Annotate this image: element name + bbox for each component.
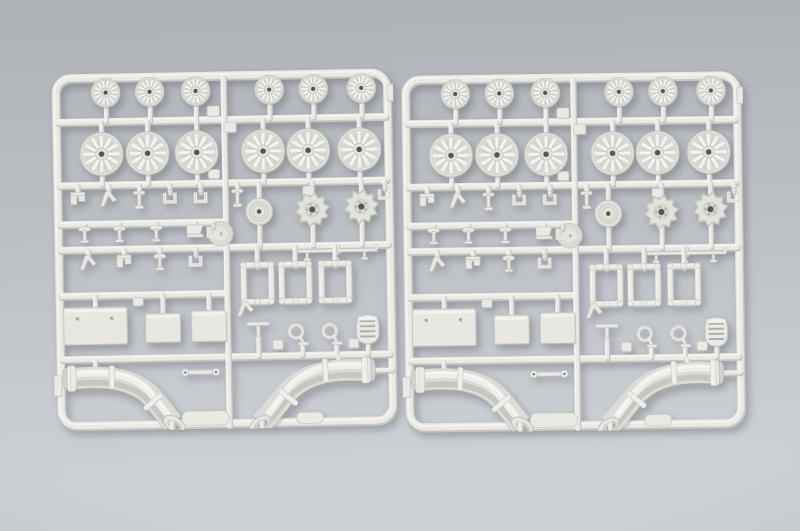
sprue-left [49,66,400,432]
small-fitting-part [80,255,97,270]
large-road-wheel-part [687,130,732,175]
idler-wheel-part [246,198,274,226]
large-road-wheel-part [126,131,171,177]
rectangular-plate-part [494,315,530,346]
tow-loop-part [289,325,308,346]
drive-sprocket-part [644,195,678,229]
open-frame-part [627,263,661,306]
small-fitting-part [133,191,145,209]
small-fitting-part [449,193,466,208]
small-fitting-part [483,193,494,211]
small-fitting-part [499,227,512,244]
large-road-wheel-part [591,131,636,176]
rectangular-plate-part [412,309,477,348]
small-fitting-part [71,192,86,205]
rectangular-plate-part [145,313,181,344]
small-fitting-part [429,257,446,272]
sprue-right [399,69,748,434]
open-frame-part [240,261,274,304]
idler-wheel-part [595,200,623,228]
large-road-wheel-part [524,132,569,177]
small-fitting-part [232,189,244,207]
drive-sprocket-part [693,192,727,226]
grille-cover-part [705,317,729,347]
drive-sprocket-part [295,192,330,227]
large-road-wheel-part [286,128,331,174]
rectangular-plate-part [63,307,128,347]
t-handle-part [596,324,619,339]
rectangular-plate-part [191,310,227,343]
tow-loop-part [672,327,691,348]
small-fitting-part [581,191,592,209]
small-fitting-part [78,226,91,243]
small-fitting-part [187,225,204,238]
small-fitting-part [536,227,553,240]
large-road-wheel-part [475,133,520,178]
link-bar-part [530,370,568,378]
tow-loop-part [323,324,342,345]
open-frame-part [318,260,352,303]
open-frame-part [278,261,312,304]
open-frame-part [589,264,623,307]
small-fitting-part [502,255,515,272]
small-fitting-part [100,192,117,207]
t-handle-part [247,322,270,337]
large-road-wheel-part [636,131,681,176]
small-fitting-part [466,256,480,268]
grille-cover-part [356,315,380,345]
small-fitting-part [150,225,163,242]
large-road-wheel-part [80,132,125,178]
small-fitting-part [427,228,440,245]
small-fitting-part [117,255,132,268]
small-fitting-part [420,194,434,206]
small-fitting-part [113,226,126,243]
open-frame-part [667,263,701,306]
small-fitting-part [462,227,475,244]
link-bar-part [182,368,220,376]
large-road-wheel-part [337,127,382,173]
large-road-wheel-part [241,129,286,175]
tow-loop-part [638,327,657,348]
small-fitting-part [154,254,167,271]
rectangular-plate-part [540,312,576,345]
drive-sprocket-part [344,189,379,224]
large-road-wheel-part [429,134,474,179]
large-road-wheel-part [175,130,220,176]
